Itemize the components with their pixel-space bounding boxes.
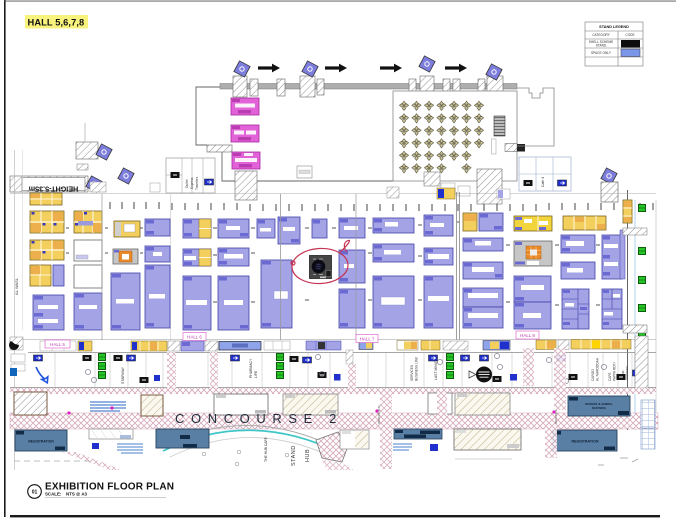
svg-text:HALL 5: HALL 5 [50, 342, 65, 347]
svg-text:PAPPA ROTI: PAPPA ROTI [613, 362, 617, 381]
svg-text:HALL 8: HALL 8 [520, 333, 535, 338]
svg-text:NURSING: NURSING [592, 406, 607, 410]
svg-text:STAND: STAND [596, 44, 607, 48]
svg-text:REGISTRATION: REGISTRATION [28, 440, 54, 444]
svg-text:Travelers: Travelers [195, 176, 199, 190]
svg-text:HEIGHT-5.35m: HEIGHT-5.35m [29, 185, 79, 194]
svg-text:THE HUB CAFE: THE HUB CAFE [264, 436, 268, 462]
svg-text:SPACE ONLY: SPACE ONLY [591, 51, 612, 55]
svg-text:HALL 5,6,7,8: HALL 5,6,7,8 [28, 18, 85, 28]
svg-text:CATEGORY: CATEGORY [592, 33, 610, 37]
svg-text:Cafe 4: Cafe 4 [541, 177, 545, 187]
svg-text:CODE: CODE [625, 33, 634, 37]
svg-text:REGISTRATION: REGISTRATION [572, 440, 599, 444]
svg-text:HALL 6: HALL 6 [187, 335, 202, 340]
svg-text:STAND: STAND [291, 445, 297, 466]
svg-text:CONCOURSE 2: CONCOURSE 2 [175, 411, 343, 426]
svg-text:CARGO: CARGO [591, 369, 595, 381]
svg-text:PHARMACY: PHARMACY [249, 358, 253, 378]
svg-text:HALL 7: HALL 7 [360, 337, 375, 342]
svg-text:STAIRWAY: STAIRWAY [121, 366, 125, 384]
svg-text:NTS @ A3: NTS @ A3 [66, 492, 88, 497]
svg-text:STAND LEGEND: STAND LEGEND [599, 25, 629, 29]
svg-text:HUB: HUB [305, 449, 311, 462]
svg-text:BUSINESS LINK: BUSINESS LINK [415, 356, 419, 381]
svg-text:Express: Express [190, 177, 194, 189]
svg-text:SERVICES: SERVICES [410, 365, 414, 381]
svg-text:AL WASL: AL WASL [14, 277, 19, 295]
svg-text:Outlet: Outlet [185, 179, 189, 188]
svg-text:SCALE:: SCALE: [45, 492, 62, 497]
svg-text:EXHIBITION FLOOR PLAN: EXHIBITION FLOOR PLAN [45, 482, 174, 493]
svg-text:LIFE: LIFE [254, 370, 258, 378]
svg-text:AL NAROODAH: AL NAROODAH [596, 357, 600, 381]
svg-text:01: 01 [32, 490, 38, 496]
svg-text:CONTROL: CONTROL [625, 365, 629, 380]
svg-text:CAFE: CAFE [608, 372, 612, 381]
